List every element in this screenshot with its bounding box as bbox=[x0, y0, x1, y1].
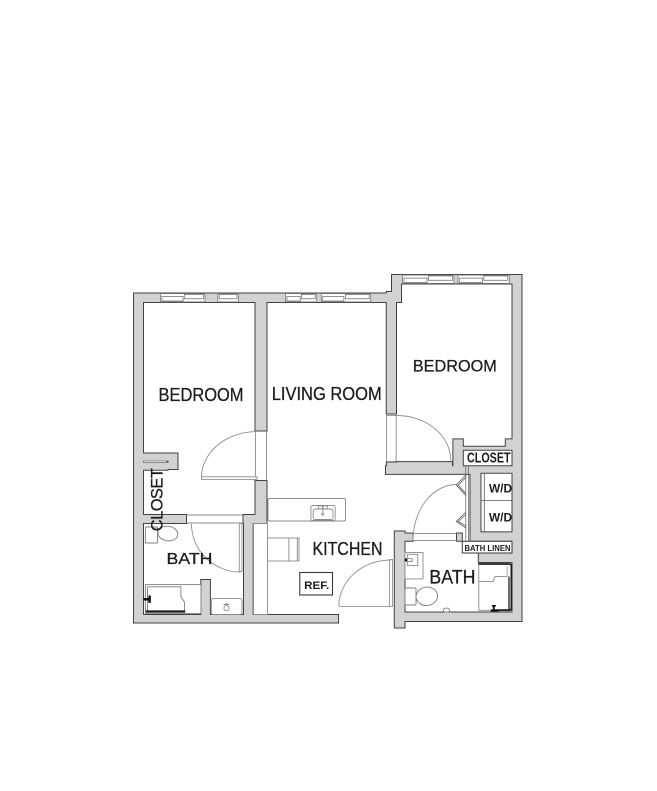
svg-text:CLOSET: CLOSET bbox=[149, 468, 167, 531]
svg-text:W/D: W/D bbox=[489, 482, 512, 496]
svg-text:BATH: BATH bbox=[429, 568, 475, 589]
svg-text:CLOSET: CLOSET bbox=[467, 450, 511, 467]
svg-text:W/D: W/D bbox=[489, 511, 512, 525]
svg-text:BATH LINEN: BATH LINEN bbox=[465, 543, 511, 553]
svg-text:BEDROOM: BEDROOM bbox=[413, 357, 497, 376]
svg-text:REF.: REF. bbox=[304, 580, 329, 592]
svg-text:BATH: BATH bbox=[167, 551, 213, 568]
svg-text:KITCHEN: KITCHEN bbox=[313, 539, 383, 559]
svg-text:BEDROOM: BEDROOM bbox=[159, 385, 244, 405]
svg-text:LIVING ROOM: LIVING ROOM bbox=[272, 384, 382, 404]
